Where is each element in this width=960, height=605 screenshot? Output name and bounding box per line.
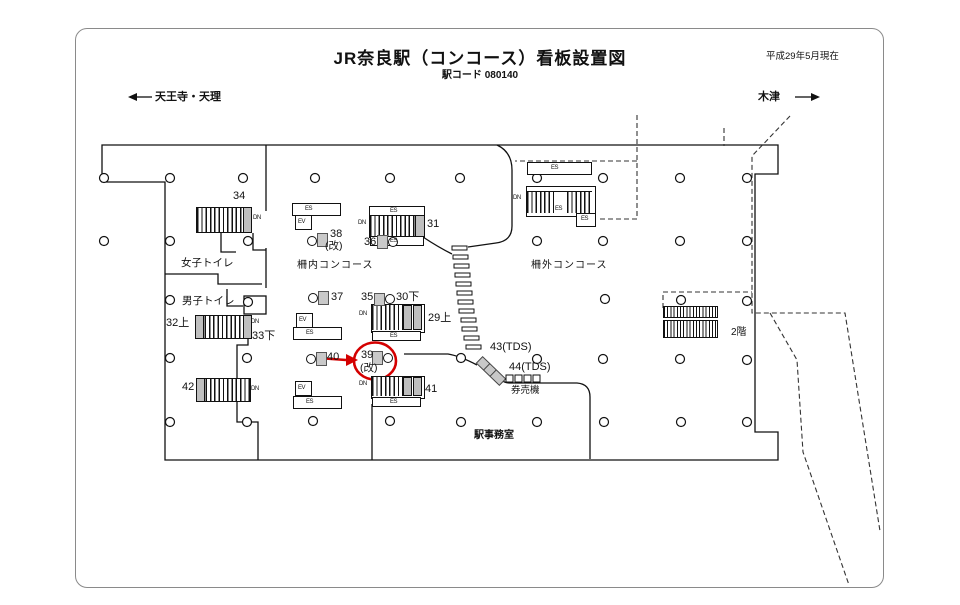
sign-label-32: 32上 [166,318,189,329]
sign-label-38-note: (改) [325,241,343,252]
sign-board-36 [377,235,388,249]
station-code: 駅コード 080140 [0,71,960,81]
escalator-41-left [403,377,412,396]
sign-label-30: 30下 [396,292,419,303]
dn-glyph-29: DN [359,311,367,317]
area-ticket-machines: 券売機 [511,386,540,396]
sign-label-31: 31 [427,219,439,230]
dn-glyph-33: DN [251,319,259,325]
area-female-toilet: 女子トイレ [181,258,234,269]
stair-top-mid-right [567,191,592,213]
ticket-gates [452,246,481,349]
sign-board-40 [316,352,327,366]
es-glyph-41-bottom: ES [390,399,397,405]
stair-top-mid-left [527,191,553,213]
escalator-bar-mid [293,327,342,340]
sign-label-33: 33下 [252,331,275,342]
sign-label-35: 35 [361,292,373,303]
es-glyph-top-mid-stair: ES [554,206,563,212]
escalator-bar-top-mid [527,162,592,175]
area-outside-concourse: 柵外コンコース [531,261,608,271]
ev-glyph-mid: EV [299,317,306,323]
area-male-toilet: 男子トイレ [182,296,235,307]
es-glyph-31-bottom: ES [390,238,397,244]
red-arrow-head-icon [346,354,358,366]
sign-symbol-40 [306,354,316,364]
es-glyph-mid: ES [306,330,313,336]
ev-glyph-south: EV [298,385,305,391]
sign-board-35 [374,293,385,306]
escalator-bar-south [293,396,342,409]
dn-glyph-31: DN [358,220,366,226]
sign-symbol-39 [383,353,393,363]
stair-32-33 [195,315,252,339]
dn-glyph-top-mid: DN [513,195,521,201]
sign-label-34: 34 [233,191,245,202]
vending-machines [506,375,540,382]
sign-symbol-38 [307,236,317,246]
stair-34 [196,207,252,233]
sign-label-43: 43(TDS) [490,342,532,353]
sign-label-41: 41 [425,384,437,395]
sign-label-36: 36 [364,237,376,248]
sign-symbol-37 [308,293,318,303]
sign-label-42: 42 [182,382,194,393]
dn-glyph-41: DN [359,381,367,387]
floor-plan [0,0,960,605]
es-glyph-top-mid-bar: ES [551,165,558,171]
sign-board-37 [318,291,329,305]
escalator-29-left [403,305,412,330]
escalator-41-right [413,377,422,396]
dn-glyph-34: DN [253,215,261,221]
direction-arrows [128,93,820,101]
stair-2f-upper [663,306,718,318]
tds-sign-43 [476,357,505,386]
sign-label-40: 40 [327,352,339,363]
sign-label-37: 37 [331,292,343,303]
stair-41-hatch [372,377,403,396]
sign-symbol-35 [385,294,395,304]
es-glyph-29-bottom: ES [390,333,397,339]
stair-29-hatch [372,305,403,330]
sign-label-29: 29上 [428,313,451,324]
sign-label-38: 38 [330,229,342,240]
area-second-floor: 2階 [731,328,747,338]
es-glyph-top-mid-box: ES [581,216,588,222]
date-note: 平成29年5月現在 [766,52,839,62]
direction-right-label: 木津 [758,92,780,103]
sign-label-39-note: (改) [360,363,378,374]
sign-label-44: 44(TDS) [509,362,551,373]
area-station-office: 駅事務室 [474,431,514,441]
stair-42 [196,378,251,402]
direction-left-label: 天王寺・天理 [155,92,221,103]
dn-glyph-42: DN [251,386,259,392]
stair-29-30-block [371,304,425,333]
stair-41-block [371,376,425,399]
es-glyph-31-top: ES [390,208,397,214]
es-glyph-north: ES [305,206,312,212]
stair-2f-lower [663,320,718,338]
ev-glyph-north: EV [298,219,305,225]
es-glyph-south: ES [306,399,313,405]
escalator-29-right [413,305,422,330]
sign-label-39: 39 [361,350,373,361]
area-inside-concourse: 柵内コンコース [297,261,374,271]
diagram-page: JR奈良駅（コンコース）看板設置図 駅コード 080140 平成29年5月現在 … [0,0,960,605]
